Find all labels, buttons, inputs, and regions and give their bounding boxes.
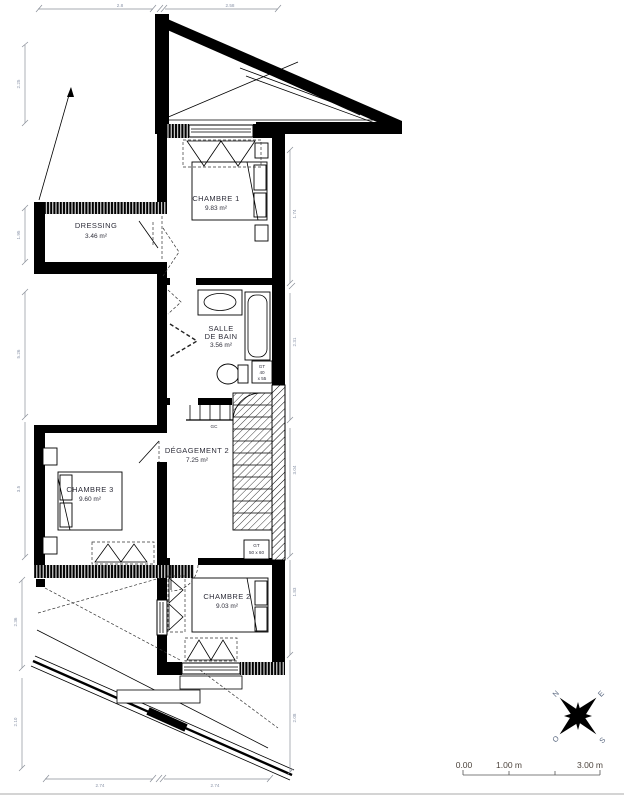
dim-top-1: 2.8 (117, 3, 124, 8)
roof-edge-line (39, 87, 74, 200)
dim-bottom-2: 2.74 (211, 783, 220, 788)
svg-text:CHAMBRE 2: CHAMBRE 2 (203, 592, 250, 601)
door-bath-main (170, 324, 197, 357)
gt-bath-line3: x 55 (258, 376, 267, 381)
roof-triangle (155, 14, 402, 134)
dim-left-2: 1.95 (16, 230, 21, 239)
stair-railing (186, 405, 233, 420)
dim-right-3: 3.04 (292, 465, 297, 474)
room-label-dressing: DRESSING 3.46 m² (75, 221, 117, 240)
svg-text:DRESSING: DRESSING (75, 221, 117, 230)
dim-left-3: 5.26 (16, 349, 21, 358)
roof-window-box (117, 690, 200, 703)
compass-rose: N E S O (528, 666, 624, 768)
room-label-degagement2: DÉGAGEMENT 2 7.25 m² (165, 446, 229, 464)
door-dressing (139, 216, 162, 260)
gt-ch2-line2: 50 x 60 (249, 550, 265, 555)
svg-text:DE BAIN: DE BAIN (205, 332, 238, 341)
toilet (217, 364, 248, 384)
bed-chambre1 (192, 143, 268, 241)
svg-text:3.56 m²: 3.56 m² (210, 342, 233, 349)
svg-text:DÉGAGEMENT 2: DÉGAGEMENT 2 (165, 446, 229, 455)
closet-chambre2-left (168, 576, 185, 632)
dimensions-bottom: 2.74 2.74 (43, 775, 273, 788)
dim-right-1: 1.74 (292, 209, 297, 218)
dim-right-5: 2.08 (292, 713, 297, 722)
scale-start: 0.00 (456, 760, 473, 770)
staircase (233, 393, 272, 530)
window-chambre2-left (157, 600, 167, 635)
dim-right-2: 2.31 (292, 337, 297, 346)
floor-plan-canvas: GT 40 x 55 GT 50 x 60 CHAMBRE 1 9.83 m² … (0, 0, 624, 800)
gt-bath-line1: GT (259, 364, 266, 369)
dim-left-6: 2.10 (13, 717, 18, 726)
compass-e: E (596, 689, 606, 699)
dim-right-4: 1.83 (292, 587, 297, 596)
door-bath-small (168, 290, 181, 314)
room-label-salle-de-bain: SALLE DE BAIN 3.56 m² (205, 324, 238, 349)
window-chambre1 (189, 125, 253, 137)
svg-text:9.60 m²: 9.60 m² (79, 496, 102, 503)
dim-left-5: 2.36 (13, 617, 18, 626)
dim-bottom-1: 2.74 (96, 783, 105, 788)
svg-text:CHAMBRE 3: CHAMBRE 3 (66, 485, 113, 494)
svg-text:3.46 m²: 3.46 m² (85, 233, 108, 240)
sink (198, 290, 242, 315)
dimensions-right: 1.74 2.31 3.04 1.83 2.08 (287, 147, 297, 775)
svg-text:CHAMBRE 1: CHAMBRE 1 (192, 194, 239, 203)
dimensions-left: 2.25 1.95 5.26 3.5 2.36 2.10 (13, 42, 28, 771)
bathtub (245, 292, 270, 360)
scale-end: 3.00 m (577, 760, 603, 770)
door-chambre3 (139, 441, 159, 463)
window-chambre2-bottom (180, 663, 242, 689)
svg-text:7.25 m²: 7.25 m² (186, 457, 209, 464)
svg-text:9.03 m²: 9.03 m² (216, 603, 239, 610)
gt-bath-line2: 40 (259, 370, 265, 375)
dim-left-1: 2.25 (16, 79, 21, 88)
gc-label: GC (211, 424, 219, 429)
compass-n: N (551, 689, 561, 699)
dim-top-2: 2.58 (226, 3, 235, 8)
duct-box-chambre2: GT 50 x 60 (244, 540, 269, 559)
dim-left-4: 3.5 (16, 485, 21, 492)
duct-box-bath: GT 40 x 55 (252, 361, 272, 383)
scale-mid: 1.00 m (496, 760, 522, 770)
gt-ch2-line1: GT (253, 543, 260, 548)
svg-text:9.83 m²: 9.83 m² (205, 205, 228, 212)
closet-chambre2-bottom (185, 638, 237, 661)
closet-chambre3 (92, 542, 154, 564)
scale-bar: 0.00 1.00 m 3.00 m (456, 760, 603, 775)
floor-plan-page: GT 40 x 55 GT 50 x 60 CHAMBRE 1 9.83 m² … (0, 0, 624, 800)
dimensions-top: 2.8 2.58 (36, 3, 281, 12)
compass-o: O (550, 734, 561, 745)
compass-s: S (597, 735, 607, 745)
